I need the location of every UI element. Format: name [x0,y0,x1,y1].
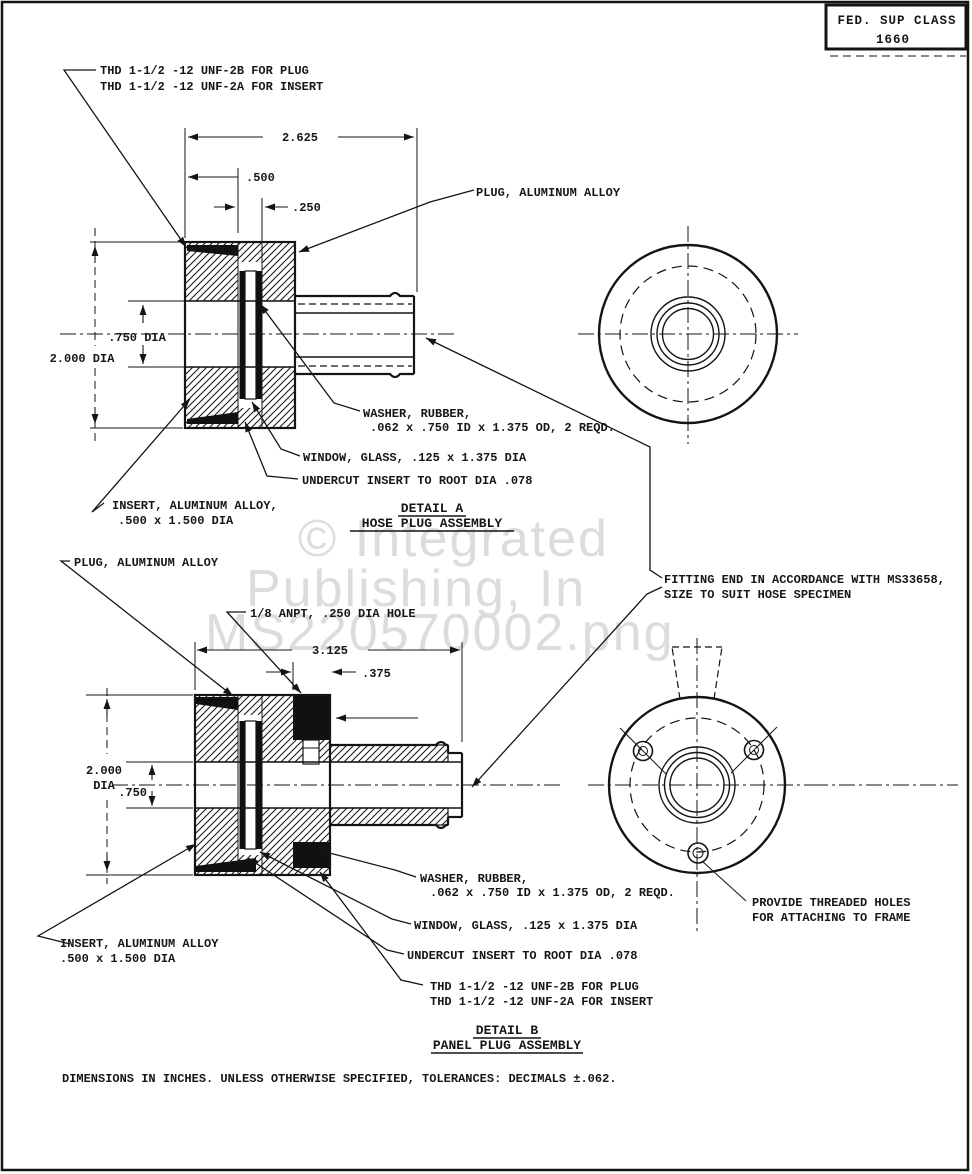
dim-overall-b: 3.125 [312,644,348,658]
window-callout-b: WINDOW, GLASS, .125 x 1.375 DIA [414,919,638,933]
fitting-callout-line2: SIZE TO SUIT HOSE SPECIMEN [664,588,851,602]
fitting-callout-line1: FITTING END IN ACCORDANCE WITH MS33658, [664,573,945,587]
dim-500-a: .500 [246,171,275,185]
dim-bore-b: .750 [118,786,147,800]
thd-callout-a-line1: THD 1-1/2 -12 UNF-2B FOR PLUG [100,64,309,78]
washer-callout-b-line2: .062 x .750 ID x 1.375 OD, 2 REQD. [430,886,675,900]
detail-b-subtitle: PANEL PLUG ASSEMBLY [433,1038,581,1053]
threaded-holes-callout-line1: PROVIDE THREADED HOLES [752,896,910,910]
insert-callout-b-line1: INSERT, ALUMINUM ALLOY [60,937,219,951]
insert-callout-a-line1: INSERT, ALUMINUM ALLOY, [112,499,278,513]
detail-b-title: DETAIL B [476,1023,539,1038]
thd-callout-a-line2: THD 1-1/2 -12 UNF-2A FOR INSERT [100,80,323,94]
detail-a-title: DETAIL A [401,501,464,516]
washer-callout-a-line2: .062 x .750 ID x 1.375 OD, 2 REQD. [370,421,615,435]
insert-callout-a-line2: .500 x 1.500 DIA [118,514,234,528]
undercut-callout-a: UNDERCUT INSERT TO ROOT DIA .078 [302,474,532,488]
plug-callout-a: PLUG, ALUMINUM ALLOY [476,186,621,200]
detail-b-section [112,695,958,875]
plug-callout-b: PLUG, ALUMINUM ALLOY [74,556,219,570]
dim-bore-a: .750 DIA [108,331,166,345]
footer-note: DIMENSIONS IN INCHES. UNLESS OTHERWISE S… [62,1072,617,1086]
window-callout-a: WINDOW, GLASS, .125 x 1.375 DIA [303,451,527,465]
anpt-callout-b: 1/8 ANPT, .250 DIA HOLE [250,607,416,621]
washer-callout-a-line1: WASHER, RUBBER, [363,407,471,421]
footer: DIMENSIONS IN INCHES. UNLESS OTHERWISE S… [62,1072,617,1086]
fed-sup-class-label: FED. SUP CLASS [837,14,956,28]
dim-od-b-line1: 2.000 [86,764,122,778]
drawing-sheet: © Integrated Publishing, In MS220570002.… [0,0,972,1174]
detail-a-end-view [578,226,798,444]
dim-375-b: .375 [362,667,391,681]
thd-callout-b-line1: THD 1-1/2 -12 UNF-2B FOR PLUG [430,980,639,994]
threaded-hole-upper-right [731,727,777,773]
watermark: © Integrated Publishing, In MS220570002.… [205,510,675,662]
dim-overall-a: 2.625 [282,131,318,145]
thd-callout-b-line2: THD 1-1/2 -12 UNF-2A FOR INSERT [430,995,653,1009]
threaded-hole-bottom [688,843,708,863]
dim-od-b-line2: DIA [93,779,115,793]
technical-drawing: © Integrated Publishing, In MS220570002.… [0,0,972,1174]
threaded-hole-upper-left [620,728,666,774]
dim-od-a: 2.000 DIA [50,352,116,366]
fed-sup-class-value: 1660 [876,33,910,47]
fed-sup-class-box: FED. SUP CLASS 1660 [826,5,966,56]
detail-a-subtitle: HOSE PLUG ASSEMBLY [362,516,503,531]
dim-250-a: .250 [292,201,321,215]
threaded-holes-callout-line2: FOR ATTACHING TO FRAME [752,911,910,925]
washer-callout-b-line1: WASHER, RUBBER, [420,872,528,886]
insert-callout-b-line2: .500 x 1.500 DIA [60,952,176,966]
undercut-callout-b: UNDERCUT INSERT TO ROOT DIA .078 [407,949,637,963]
